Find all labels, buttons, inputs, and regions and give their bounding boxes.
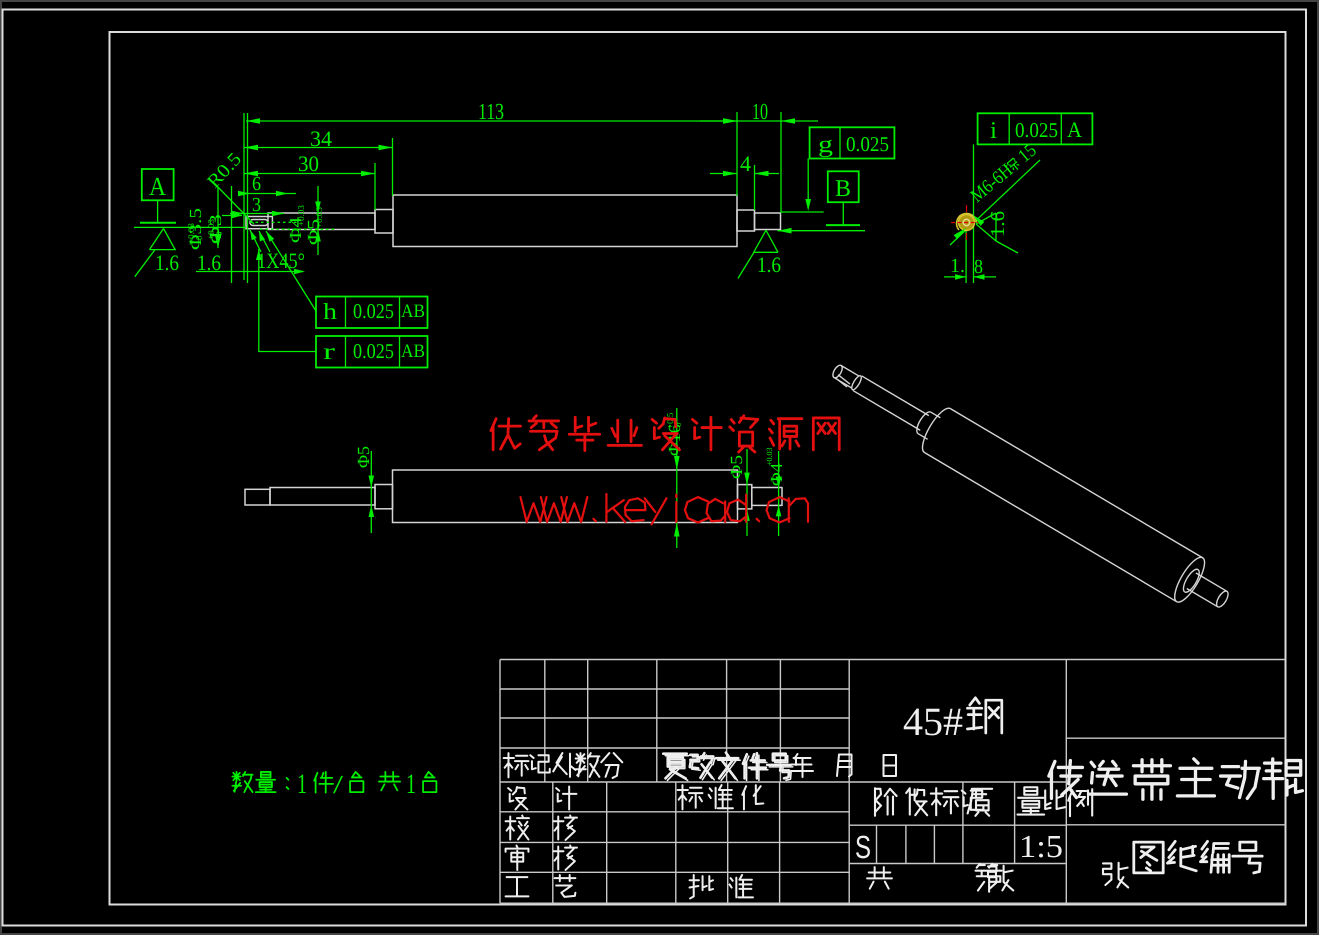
svg-text:Φ5: Φ5: [727, 455, 746, 479]
svg-text:1:5: 1:5: [1019, 828, 1063, 864]
svg-text:/: /: [333, 770, 344, 799]
svg-text:1.6: 1.6: [197, 250, 221, 275]
svg-text:4: 4: [740, 151, 751, 176]
svg-text:3: 3: [252, 194, 261, 216]
svg-text:0.025: 0.025: [1015, 118, 1058, 142]
svg-text:30: 30: [298, 151, 319, 176]
svg-text:r: r: [323, 339, 336, 364]
svg-text:g: g: [818, 132, 833, 158]
svg-text:0.025: 0.025: [353, 339, 394, 363]
svg-text:1.: 1.: [950, 255, 965, 277]
svg-text:1X45°: 1X45°: [257, 248, 305, 273]
svg-text:0.025: 0.025: [846, 132, 889, 156]
svg-text:1.6: 1.6: [987, 211, 1009, 237]
svg-text:A: A: [149, 172, 166, 201]
svg-text:+0.03: +0.03: [314, 207, 324, 228]
svg-text:113: 113: [478, 99, 504, 124]
svg-text:AB: AB: [401, 341, 425, 362]
svg-text:i: i: [990, 118, 997, 144]
svg-text:+0.03: +0.03: [765, 447, 774, 466]
svg-text:B: B: [835, 176, 851, 202]
svg-text:S: S: [855, 829, 871, 865]
svg-text:10: 10: [752, 99, 768, 124]
svg-text:0: 0: [194, 235, 204, 240]
svg-text:M6-6H: M6-6H: [967, 160, 1017, 207]
svg-text:6: 6: [252, 173, 261, 195]
svg-text:A: A: [1067, 117, 1082, 142]
svg-text:Φ5: Φ5: [354, 446, 373, 468]
svg-text:0.025: 0.025: [353, 299, 394, 323]
svg-text:45#: 45#: [903, 699, 963, 744]
svg-text:1: 1: [297, 769, 307, 800]
svg-text:h: h: [323, 299, 338, 324]
svg-text:0: 0: [214, 231, 224, 236]
svg-text:R0.5: R0.5: [203, 149, 246, 193]
svg-text:AB: AB: [401, 301, 425, 322]
svg-text:34: 34: [310, 126, 332, 151]
svg-text:1.6: 1.6: [155, 250, 179, 275]
svg-text:1.6: 1.6: [757, 252, 781, 277]
svg-text:8: 8: [974, 256, 983, 278]
svg-text:1: 1: [406, 769, 416, 800]
